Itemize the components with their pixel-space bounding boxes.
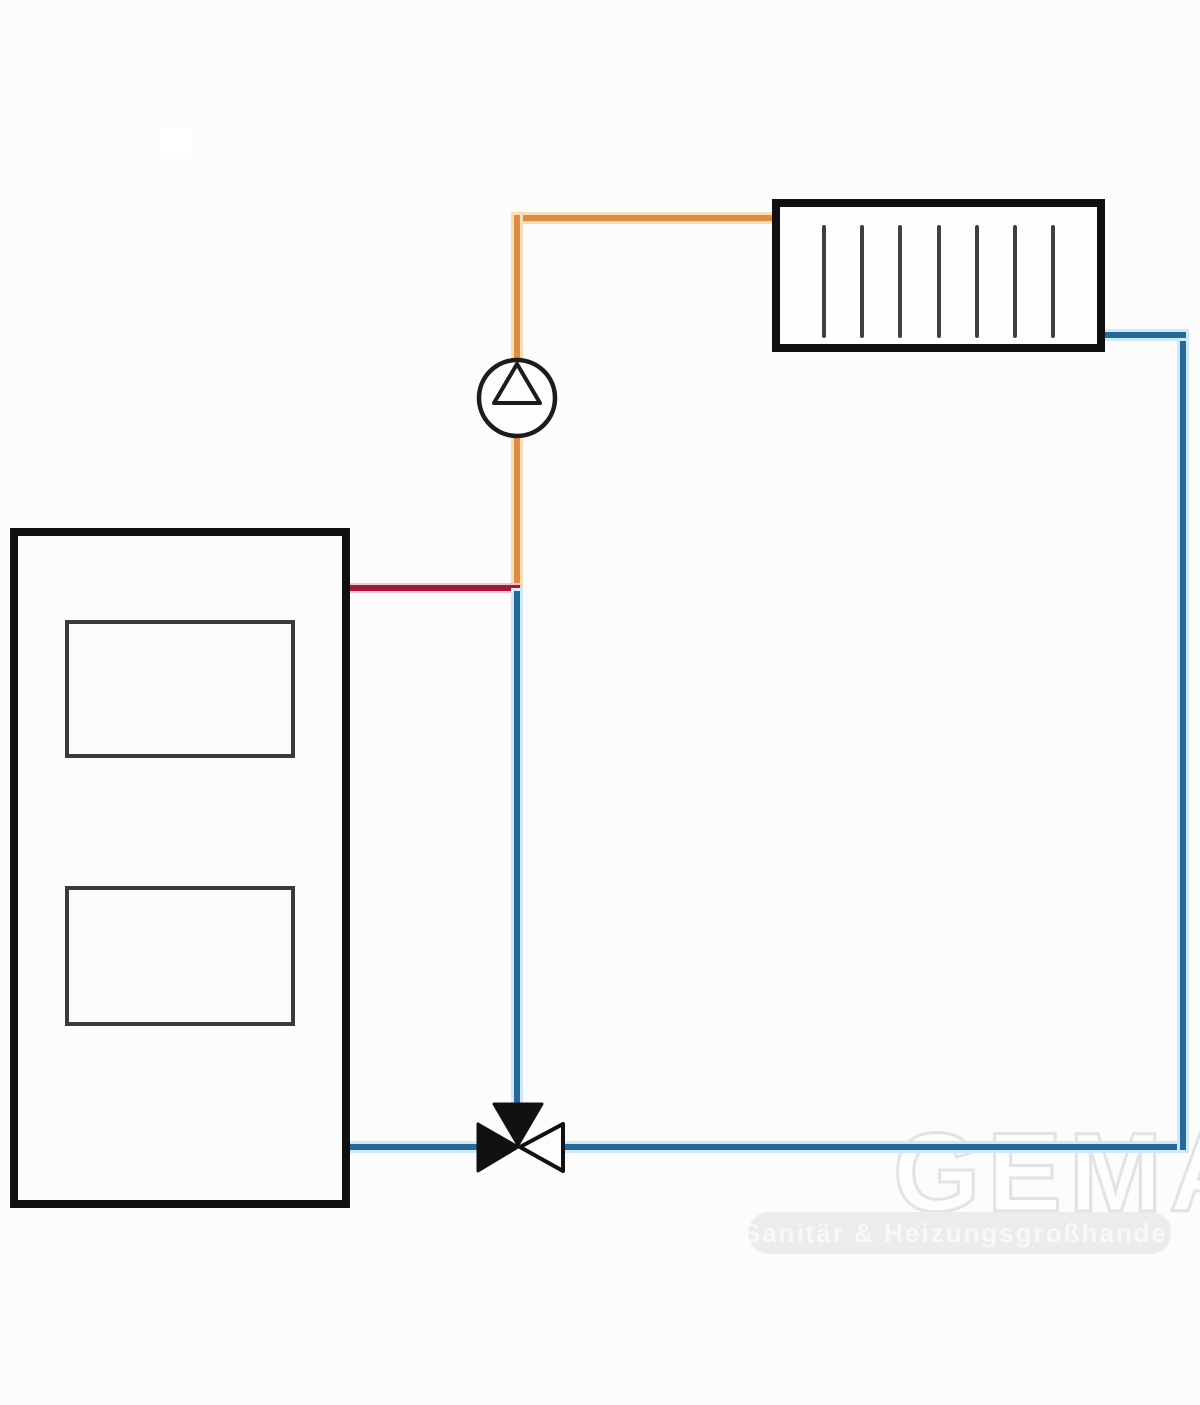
background-highlight-patch [160, 127, 192, 159]
radiator [772, 199, 1105, 352]
radiator-fin [822, 225, 826, 338]
radiator-fin [1013, 225, 1017, 338]
watermark-tagline-text: Sanitär & Heizungsgroßhandel [748, 1218, 1172, 1249]
radiator-fin [937, 225, 941, 338]
supply-pipe-horizontal [515, 215, 775, 221]
return-pipe-right-vertical [1180, 332, 1186, 1150]
radiator-fin [860, 225, 864, 338]
radiator-fin [975, 225, 979, 338]
return-pipe-middle-vertical [514, 591, 520, 1112]
mixing-valve-icon [470, 1095, 570, 1180]
watermark-tagline-bar: Sanitär & Heizungsgroßhandel [748, 1212, 1172, 1254]
boiler-lower-panel [65, 886, 295, 1026]
radiator-fin [1051, 225, 1055, 338]
pump-icon [475, 356, 559, 440]
radiator-outlet-pipe [1100, 332, 1186, 338]
radiator-fin [898, 225, 902, 338]
return-pipe-left-horizontal [348, 1144, 480, 1150]
heating-circuit-diagram: { "diagram": { "type": "heating-circuit-… [0, 0, 1200, 1405]
return-pipe-bottom-horizontal [561, 1144, 1186, 1150]
boiler-flow-pipe [348, 585, 520, 591]
boiler [10, 528, 350, 1208]
boiler-upper-panel [65, 620, 295, 758]
radiator-fins [780, 207, 1097, 344]
